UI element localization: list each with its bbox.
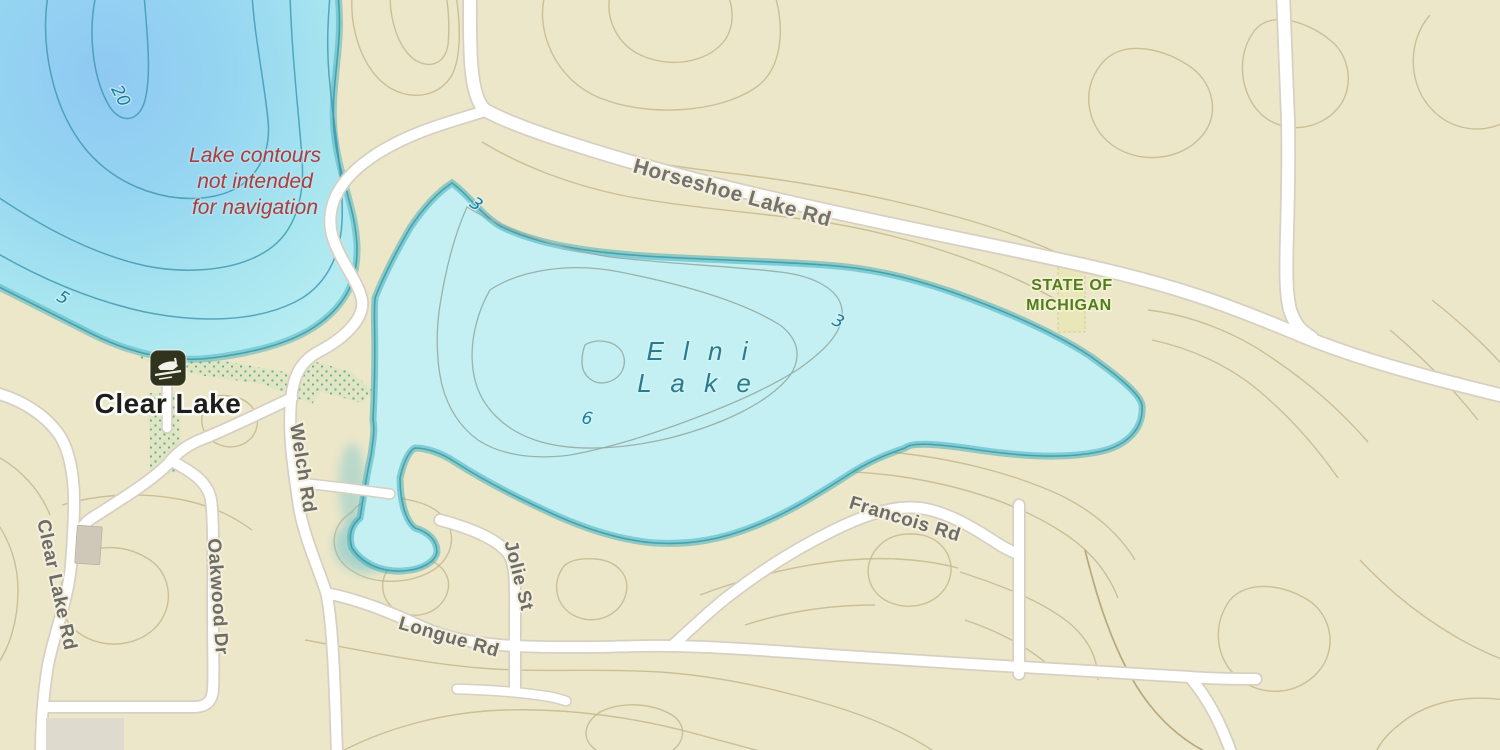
state-land-label-line-1: STATE OF: [1031, 277, 1113, 294]
disclaimer-line-2: not intended: [197, 170, 314, 193]
disclaimer-line-3: for navigation: [192, 196, 318, 219]
map-canvas[interactable]: 20 5 3 3 6 Horseshoe Lake Rd Welch Rd Oa…: [0, 0, 1500, 750]
parking-lot: [46, 718, 124, 750]
state-land-label-line-2: MICHIGAN: [1026, 297, 1112, 314]
elni-lake-name-line-1: E l n i: [646, 336, 753, 366]
elni-lake-name-line-2: L a k e: [637, 368, 757, 398]
map-viewport[interactable]: 20 5 3 3 6 Horseshoe Lake Rd Welch Rd Oa…: [0, 0, 1500, 750]
building-footprint: [75, 525, 103, 565]
clear-lake-name: Clear Lake: [95, 388, 242, 419]
disclaimer-line-1: Lake contours: [189, 144, 321, 167]
boat-launch-icon[interactable]: [150, 350, 186, 386]
